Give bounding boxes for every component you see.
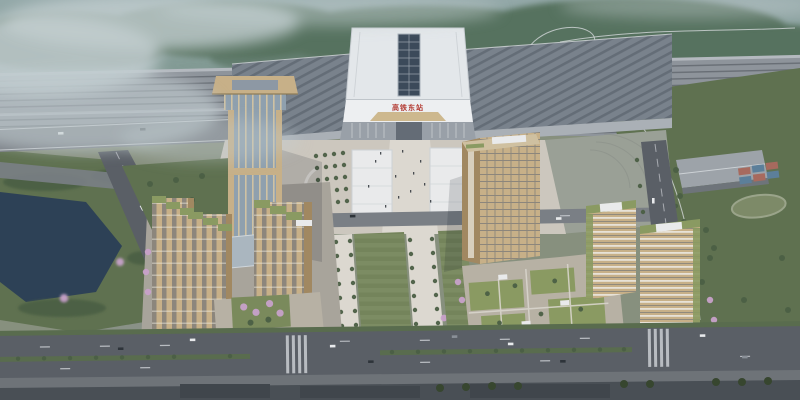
station-main-hall: 高铁东站 [340, 28, 476, 150]
tower-crown [212, 76, 298, 94]
station-name-sign: 高铁东站 [392, 103, 424, 112]
entrance-gold-canopy [370, 112, 446, 121]
scene-rendering: Aerial architectural rendering of a high… [0, 0, 800, 400]
garden-tower-north [586, 200, 636, 300]
station-east-wing-canopy [458, 34, 672, 142]
rooftop-solar-strip [398, 34, 420, 96]
residential-tower-a [152, 196, 194, 330]
rendering-canvas: Aerial architectural rendering of a high… [0, 0, 800, 400]
